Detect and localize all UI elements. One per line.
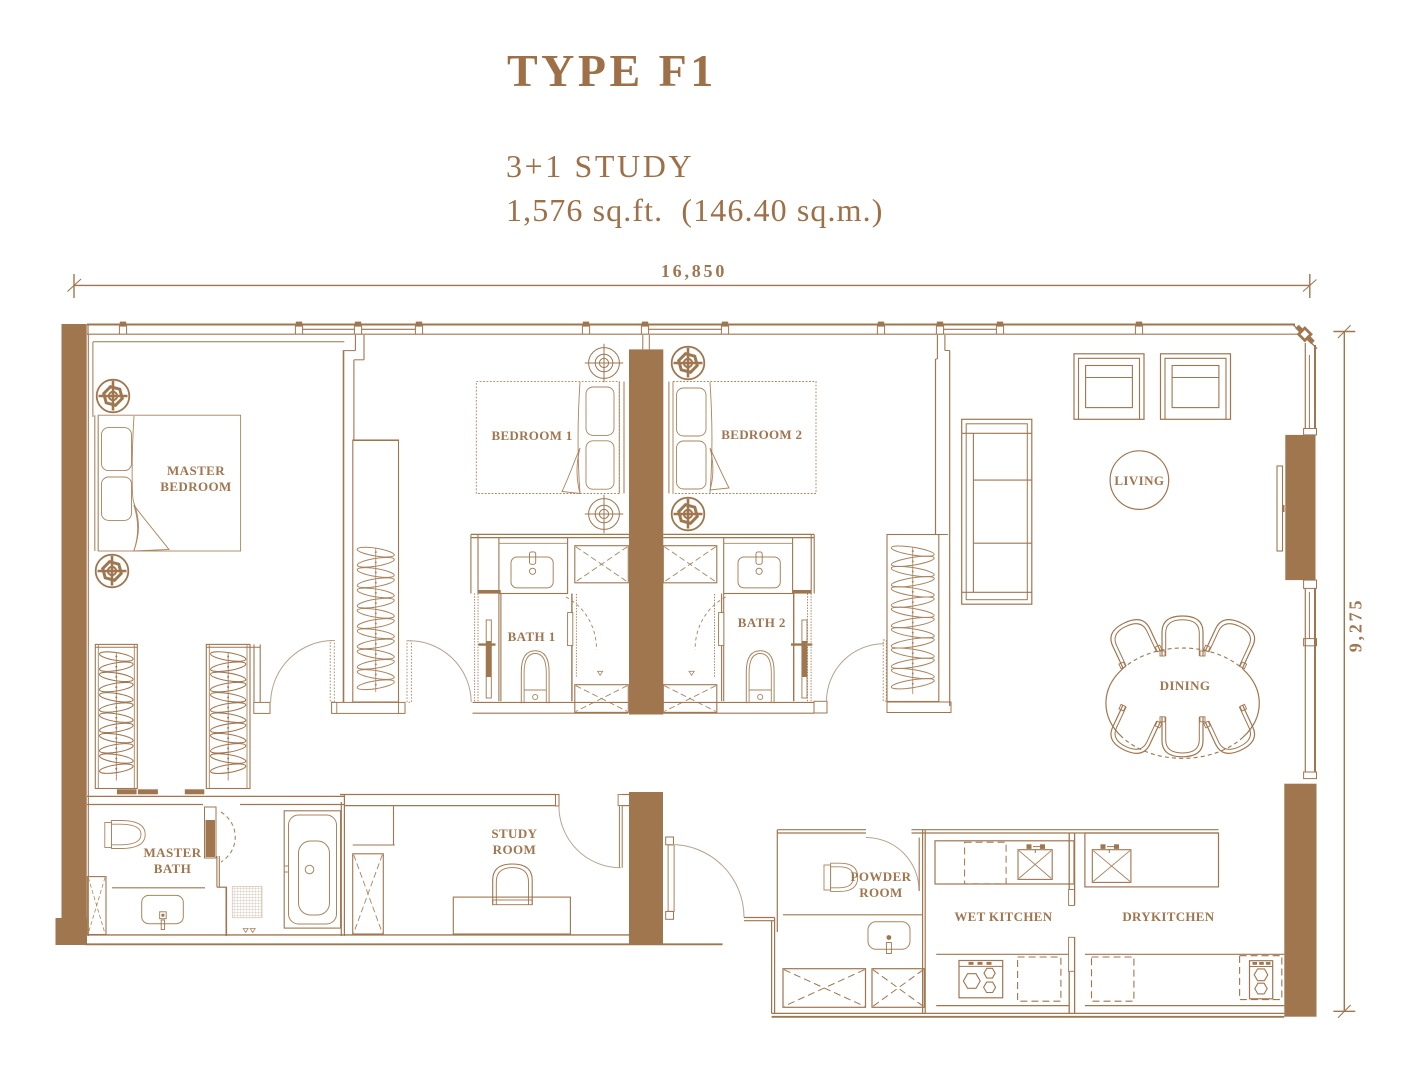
svg-text:BATH 2: BATH 2 [738, 615, 786, 630]
svg-text:DRYKITCHEN: DRYKITCHEN [1122, 909, 1214, 924]
svg-text:16,850: 16,850 [661, 261, 727, 281]
svg-text:9,275: 9,275 [1346, 598, 1366, 653]
svg-text:BEDROOM 2: BEDROOM 2 [721, 427, 802, 442]
svg-text:LIVING: LIVING [1114, 473, 1164, 488]
svg-text:ROOM: ROOM [859, 885, 902, 900]
svg-text:BATH: BATH [154, 861, 191, 876]
svg-text:DINING: DINING [1160, 678, 1211, 693]
svg-text:BATH 1: BATH 1 [508, 629, 556, 644]
svg-text:STUDY: STUDY [491, 826, 537, 841]
svg-text:1,576 sq.ft. (146.40 sq.m.): 1,576 sq.ft. (146.40 sq.m.) [506, 192, 883, 228]
svg-text:BEDROOM: BEDROOM [160, 479, 231, 494]
svg-text:POWDER: POWDER [851, 869, 912, 884]
svg-text:ROOM: ROOM [493, 842, 536, 857]
svg-text:WET KITCHEN: WET KITCHEN [954, 909, 1052, 924]
svg-text:MASTER: MASTER [143, 845, 201, 860]
svg-text:TYPE F1: TYPE F1 [507, 45, 717, 96]
svg-text:3+1 STUDY: 3+1 STUDY [506, 148, 694, 184]
svg-text:BEDROOM 1: BEDROOM 1 [491, 428, 572, 443]
svg-text:MASTER: MASTER [167, 463, 225, 478]
